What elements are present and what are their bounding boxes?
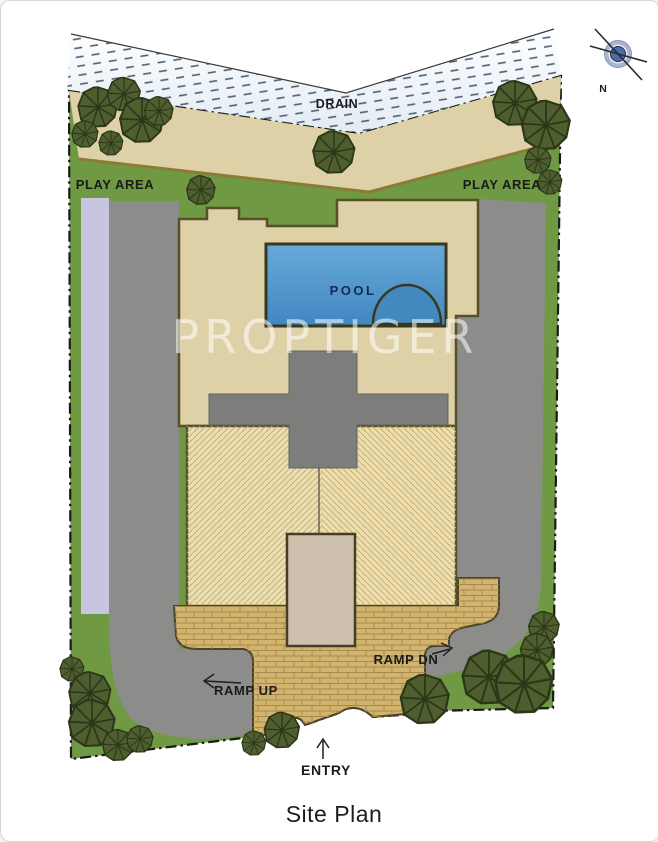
watermark-text: PROPTIGER <box>172 310 479 364</box>
entry-arrow <box>317 739 329 759</box>
courtyard-block <box>287 534 355 646</box>
tree-icon <box>145 97 173 125</box>
tree-icon <box>525 147 551 173</box>
tree-icon <box>99 131 123 155</box>
ramp-down-label: RAMP DN <box>374 652 439 667</box>
tree-icon <box>72 121 98 147</box>
tree-icon <box>522 101 570 149</box>
drain-label: DRAIN <box>316 97 359 111</box>
play-area-left-label: PLAY AREA <box>76 177 155 192</box>
compass-needles <box>590 29 647 80</box>
page-title: Site Plan <box>286 801 383 827</box>
tree-icon <box>242 731 266 755</box>
site-plan-image: PROPTIGER N DRAIN PLAY AREA PLAY AREA PO… <box>0 0 658 842</box>
tree-icon <box>538 170 562 194</box>
tree-icon <box>401 675 449 723</box>
site-plan-drawing: PROPTIGER N DRAIN PLAY AREA PLAY AREA PO… <box>1 1 658 841</box>
walkway-strip <box>81 198 109 614</box>
ramp-up-label: RAMP UP <box>214 683 278 698</box>
entry-label: ENTRY <box>301 762 351 778</box>
north-label: N <box>599 83 607 95</box>
tree-icon <box>127 726 153 752</box>
pool-label: POOL <box>330 283 377 298</box>
play-area-right-label: PLAY AREA <box>463 177 542 192</box>
tree-icon <box>495 655 552 712</box>
tree-icon <box>264 712 299 747</box>
compass-icon: N <box>590 29 647 95</box>
tree-icon <box>313 131 354 173</box>
tree-icon <box>187 176 215 204</box>
